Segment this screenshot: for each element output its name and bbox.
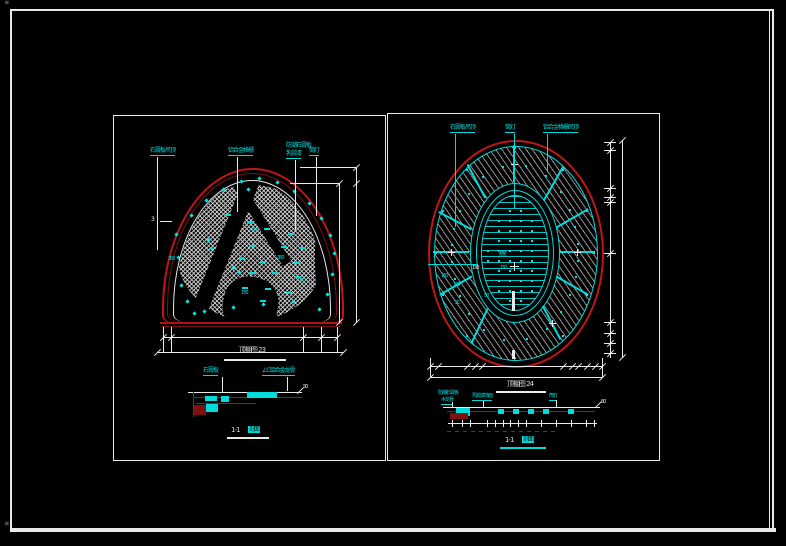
- dim-ext-line: [303, 327, 304, 353]
- dim-tick: [594, 420, 595, 427]
- arch-base-line2: [162, 326, 340, 327]
- dim-tick: [503, 420, 504, 427]
- leader-line: [455, 134, 456, 227]
- light-symbol-icon: [442, 210, 444, 212]
- light-symbol-icon: [531, 280, 533, 282]
- leader-dash: [247, 221, 253, 223]
- leader-label: 筒灯: [309, 148, 319, 156]
- leader-dash: [288, 233, 294, 235]
- light-symbol-icon: [498, 280, 500, 282]
- leader-dash: [225, 214, 231, 216]
- section-hatch-block: [528, 409, 534, 414]
- leader-label: 防潮石膏板: [438, 390, 458, 397]
- dim-tick: [470, 420, 471, 427]
- drawing-caption: 顶棚图 24: [492, 380, 548, 388]
- dim-ext-line: [337, 327, 338, 353]
- light-symbol-icon: [466, 335, 468, 337]
- leader-label: 石膏板: [203, 368, 218, 376]
- light-symbol-icon: [531, 260, 533, 262]
- dim-text: 150: [472, 266, 479, 271]
- dim-line: [610, 142, 611, 358]
- dim-line: [339, 183, 340, 323]
- dim-text: 3: [151, 217, 154, 222]
- section-hatch-block: [543, 409, 549, 414]
- light-symbol-icon: [498, 220, 500, 222]
- leader-dash: [250, 272, 256, 274]
- light-symbol-icon: [562, 169, 564, 171]
- light-symbol-icon: [520, 220, 522, 222]
- light-symbol-icon: [487, 260, 489, 262]
- light-symbol-icon: [520, 250, 522, 252]
- caption-underline: [224, 359, 286, 361]
- center-bar: [512, 350, 515, 359]
- dim-line: [430, 377, 602, 378]
- caption-underline: [227, 437, 269, 439]
- light-symbol-icon: [531, 220, 533, 222]
- light-symbol-icon: [560, 191, 562, 193]
- leader-dash: [272, 272, 278, 274]
- light-symbol-icon: [454, 278, 456, 280]
- leader-label: 石膏板吊顶: [450, 125, 475, 133]
- light-symbol-icon: [574, 226, 576, 228]
- dim-ext-line: [171, 327, 172, 353]
- light-symbol-icon: [509, 300, 511, 302]
- section-red-line: [196, 403, 256, 404]
- leader-line: [222, 377, 223, 393]
- dim-tick: [495, 420, 496, 427]
- dim-text: 50: [303, 385, 307, 390]
- dim-text: 2C: [455, 301, 460, 306]
- light-symbol-icon: [586, 294, 588, 296]
- light-symbol-icon: [562, 335, 564, 337]
- leader-label: ∠C铝合金龙骨: [262, 368, 295, 376]
- leader-line: [157, 157, 158, 250]
- dim-text: 150: [441, 274, 448, 279]
- light-symbol-icon: [483, 329, 485, 331]
- dim-tick: [462, 420, 463, 427]
- light-symbol-icon: [453, 228, 455, 230]
- sheet-border-left: [10, 9, 12, 530]
- light-symbol-icon: [468, 193, 470, 195]
- leader-label: 乳胶漆: [286, 151, 301, 159]
- node-star-icon: ✦: [230, 265, 238, 274]
- light-symbol-icon: [468, 313, 470, 315]
- light-symbol-icon: [509, 230, 511, 232]
- light-symbol-icon: [577, 260, 579, 262]
- sheet-border-top: [10, 9, 774, 11]
- dim-tick: [510, 420, 511, 427]
- section-red-dashed-line: [447, 431, 558, 432]
- light-symbol-icon: [531, 270, 533, 272]
- light-symbol-icon: [498, 260, 500, 262]
- sheet-border-right-inner: [769, 9, 770, 530]
- light-symbol-icon: [487, 250, 489, 252]
- leader-dash: [249, 245, 255, 247]
- light-symbol-icon: [466, 169, 468, 171]
- section-caption-word: 剖面: [248, 426, 260, 433]
- dim-text: 750: [298, 279, 305, 284]
- light-symbol-icon: [577, 243, 579, 245]
- light-symbol-icon: [451, 244, 453, 246]
- dim-text: 50: [601, 400, 605, 405]
- dim-ext-line: [163, 327, 164, 353]
- leader-dash: [264, 228, 270, 230]
- node-star-icon: ✦: [205, 237, 212, 245]
- dim-tick: [571, 420, 572, 427]
- section-hatch-block: [498, 409, 504, 414]
- dim-text: 150: [251, 229, 258, 234]
- light-symbol-icon: [509, 290, 511, 292]
- light-symbol-icon: [531, 240, 533, 242]
- section-caption-num: 1-1: [505, 436, 513, 444]
- light-symbol-icon: [545, 175, 547, 177]
- light-symbol-icon: [509, 280, 511, 282]
- section-hatch-block: [221, 396, 229, 402]
- dim-tick: [526, 420, 527, 427]
- ring-cross-icon: [552, 320, 553, 327]
- arch-base-line: [160, 322, 342, 324]
- dim-text: 150: [241, 291, 248, 296]
- dim-text: 50: [484, 294, 488, 299]
- leader-label: 筒灯: [505, 125, 515, 133]
- caption-underline: [496, 391, 546, 393]
- drawing-caption: 顶棚图 23: [222, 346, 282, 354]
- section-hatch-block: [206, 404, 218, 412]
- caption-underline: [500, 447, 546, 449]
- light-symbol-icon: [435, 252, 437, 254]
- light-symbol-icon: [520, 210, 522, 212]
- section-caption-word: 剖面: [522, 436, 534, 443]
- dim-tick: [518, 420, 519, 427]
- light-symbol-icon: [520, 260, 522, 262]
- leader-line: [556, 400, 557, 407]
- dim-tick-line: [160, 221, 172, 222]
- light-symbol-icon: [451, 261, 453, 263]
- light-symbol-icon: [520, 230, 522, 232]
- leader-label: 石膏板吊顶: [150, 148, 175, 156]
- light-symbol-icon: [459, 210, 461, 212]
- dim-text: 150: [500, 266, 507, 271]
- dim-ext-line: [300, 167, 357, 168]
- dim-text: 150: [499, 251, 506, 256]
- dim-text: 350: [277, 256, 284, 261]
- leader-line: [514, 134, 515, 209]
- light-symbol-icon: [498, 290, 500, 292]
- light-symbol-icon: [531, 290, 533, 292]
- light-symbol-icon: [520, 240, 522, 242]
- light-symbol-icon: [593, 252, 595, 254]
- light-symbol-icon: [520, 290, 522, 292]
- leader-dash: [260, 300, 266, 302]
- light-symbol-icon: [531, 250, 533, 252]
- corner-mark-icon: ✳: [4, 521, 10, 528]
- light-symbol-icon: [509, 240, 511, 242]
- leader-line: [295, 160, 296, 230]
- light-symbol-icon: [442, 294, 444, 296]
- dim-tick: [452, 420, 453, 427]
- corner-mark-icon: ✳: [4, 0, 10, 7]
- light-symbol-icon: [569, 294, 571, 296]
- light-symbol-icon: [520, 300, 522, 302]
- light-symbol-icon: [498, 230, 500, 232]
- leader-dash: [300, 247, 306, 249]
- light-symbol-icon: [575, 276, 577, 278]
- light-symbol-icon: [509, 250, 511, 252]
- leader-label: 铝合金格栅吊顶: [543, 125, 578, 133]
- leader-dash: [281, 246, 287, 248]
- light-symbol-icon: [531, 230, 533, 232]
- light-symbol-icon: [502, 166, 504, 168]
- light-symbol-icon: [482, 176, 484, 178]
- ring-cross-icon: [577, 249, 578, 256]
- center-cross-icon: [514, 262, 515, 271]
- section-hatch-block: [568, 409, 574, 414]
- light-symbol-icon: [546, 328, 548, 330]
- light-symbol-icon: [459, 295, 461, 297]
- dim-line: [356, 167, 357, 323]
- light-symbol-icon: [509, 220, 511, 222]
- leader-dash: [294, 262, 300, 264]
- leader-dash: [265, 288, 271, 290]
- leader-dash: [242, 287, 248, 289]
- leader-line: [237, 157, 238, 212]
- sheet-border-right: [772, 9, 774, 530]
- leader-dash: [286, 292, 292, 294]
- sheet-border-bottom: [10, 528, 776, 532]
- oval-louver-core: [481, 195, 549, 311]
- light-symbol-icon: [509, 210, 511, 212]
- center-bar: [512, 291, 515, 311]
- light-symbol-icon: [586, 210, 588, 212]
- light-symbol-icon: [498, 240, 500, 242]
- dim-text: 138: [453, 283, 460, 288]
- leader-label: 防潮石膏板: [286, 143, 311, 150]
- section-top-line: [188, 392, 302, 393]
- dim-tick: [586, 420, 587, 427]
- section-hatch-block: [205, 396, 217, 401]
- leader-label: 乳胶漆饰面: [472, 393, 492, 401]
- dim-ext-line: [290, 183, 340, 184]
- light-symbol-icon: [560, 311, 562, 313]
- leader-dash: [260, 261, 266, 263]
- leader-dash: [239, 258, 245, 260]
- light-symbol-icon: [520, 270, 522, 272]
- cad-canvas[interactable]: ✳ ✳ ✦ ✦ 石膏板吊顶 铝合金格栅 防潮石膏板 乳胶漆 筒灯 3 350 1…: [0, 0, 786, 546]
- light-symbol-icon: [503, 339, 505, 341]
- light-symbol-icon: [520, 280, 522, 282]
- light-symbol-icon: [509, 260, 511, 262]
- dim-tick: [541, 420, 542, 427]
- section-hatch-block: [513, 409, 519, 414]
- light-symbol-icon: [526, 338, 528, 340]
- section-red-block: [450, 413, 468, 419]
- leader-line: [547, 134, 548, 172]
- dim-tick: [556, 420, 557, 427]
- dim-line: [163, 337, 337, 338]
- leader-label: 铝合金格栅: [228, 148, 253, 156]
- section-red-block: [194, 405, 206, 415]
- dim-text: 350: [168, 257, 175, 262]
- dim-line: [622, 140, 623, 358]
- leader-line: [316, 157, 317, 216]
- dim-tick: [487, 420, 488, 427]
- light-symbol-icon: [525, 165, 527, 167]
- light-symbol-icon: [509, 270, 511, 272]
- ring-cross-icon: [451, 249, 452, 256]
- dim-ext-line: [321, 327, 322, 353]
- light-symbol-icon: [569, 209, 571, 211]
- dim-ext-line: [428, 264, 478, 265]
- leader-line: [287, 377, 288, 391]
- section-caption-num: 1-1: [231, 426, 239, 434]
- section-hatch-block: [247, 392, 277, 398]
